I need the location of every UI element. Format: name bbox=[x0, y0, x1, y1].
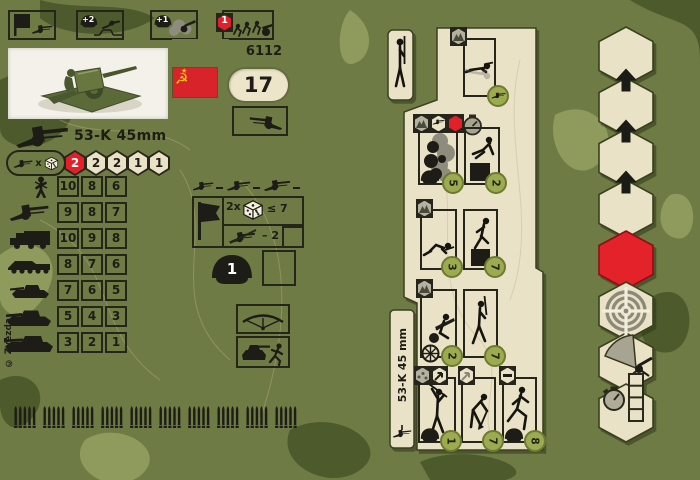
gun-badge bbox=[430, 114, 447, 133]
copyright: © Zvezda bbox=[4, 318, 14, 367]
rally-flag-cell bbox=[194, 198, 224, 246]
gun-icon bbox=[13, 159, 33, 168]
order-run-cost-badge: 8 bbox=[524, 430, 546, 452]
halt-badge bbox=[499, 366, 516, 385]
unit-stat-card: +2 +1 1 6112 bbox=[0, 0, 315, 440]
target-light-tank-icon bbox=[8, 282, 52, 299]
rally-threshold: ≤ 7 bbox=[267, 202, 288, 215]
copyright-wrap: © Zvezda bbox=[4, 300, 14, 386]
rally-flag-icon bbox=[194, 198, 222, 244]
rally-box: 2x ≤ 7 – 2 bbox=[192, 196, 304, 248]
trench-shooter-icon bbox=[94, 14, 122, 38]
order-cost: 7 bbox=[489, 263, 501, 270]
gun-in-bush-icon bbox=[168, 13, 196, 37]
soviet-flag: ★ ☭ bbox=[173, 68, 217, 97]
crew-pushing-gun-icon bbox=[230, 14, 272, 38]
to-hit-cell: 6 bbox=[105, 254, 127, 275]
crew-counter: 1 bbox=[208, 252, 256, 290]
vertical-title-wrap: 53-K 45 mm bbox=[390, 312, 414, 418]
to-hit-cell: 8 bbox=[81, 176, 103, 197]
unit-photo bbox=[8, 48, 168, 119]
rough-ground-badge bbox=[414, 366, 431, 385]
target-halftrack-icon bbox=[6, 256, 52, 274]
to-hit-cell: 4 bbox=[81, 306, 103, 327]
assault-box bbox=[236, 336, 290, 368]
flag-and-gun-icon bbox=[10, 12, 54, 38]
to-hit-cell: 10 bbox=[57, 228, 79, 249]
helmet-icon bbox=[419, 169, 441, 187]
unit-title: 53-K 45mm bbox=[74, 128, 214, 144]
order-assault-cost-badge: 2 bbox=[485, 172, 507, 194]
concealment-bonus-box: +1 bbox=[150, 10, 198, 40]
to-hit-cell: 1 bbox=[105, 332, 127, 353]
anti-tank-gun-icon bbox=[246, 115, 286, 130]
order-cost: 1 bbox=[445, 437, 457, 444]
range-bands-icon bbox=[192, 178, 304, 194]
terrain-badge bbox=[413, 114, 430, 133]
to-hit-cell: 3 bbox=[105, 306, 127, 327]
to-hit-cell: 7 bbox=[81, 254, 103, 275]
to-hit-cell: 7 bbox=[105, 202, 127, 223]
target-gun-icon bbox=[8, 203, 50, 221]
to-hit-cell: 10 bbox=[57, 176, 79, 197]
attack-formula-box: x bbox=[6, 150, 66, 176]
infantry-bonus-label: +2 bbox=[82, 15, 94, 24]
pebbles-icon bbox=[416, 370, 429, 381]
to-hit-cell: 3 bbox=[57, 332, 79, 353]
deployment-icon-box bbox=[8, 10, 56, 40]
terrain-badge bbox=[416, 199, 433, 218]
wheel-icon bbox=[420, 343, 441, 364]
order-cost: 8 bbox=[529, 437, 541, 444]
marker-square bbox=[262, 250, 296, 286]
vertical-title: 53-K 45 mm bbox=[396, 328, 409, 402]
ammo-clips-strip bbox=[12, 404, 304, 430]
target-truck-icon bbox=[8, 229, 52, 250]
soldier-with-rifle-icon bbox=[390, 34, 411, 96]
rally-multiplier: 2x bbox=[226, 200, 241, 213]
order-smoke-cost-badge: 5 bbox=[442, 172, 464, 194]
dice-icon bbox=[44, 156, 59, 171]
terrain-badge bbox=[450, 27, 467, 46]
rally-empty-cell bbox=[282, 226, 302, 246]
mountain-icon bbox=[418, 202, 431, 215]
title-gun-icon bbox=[14, 124, 70, 148]
order-climb-cost-badge: 7 bbox=[484, 256, 506, 278]
order-cost: 5 bbox=[447, 179, 459, 186]
to-hit-cell: 6 bbox=[105, 176, 127, 197]
terrain-badge bbox=[416, 279, 433, 298]
order-crew-gun-cost-badge: 2 bbox=[441, 345, 463, 367]
order-crawl-cost-badge: 3 bbox=[441, 256, 463, 278]
helmet-icon bbox=[503, 427, 525, 445]
order-ambush-cost-badge bbox=[487, 85, 509, 107]
arrow-icon bbox=[434, 370, 445, 381]
title-tab-gun-icon bbox=[392, 424, 412, 444]
order-cost: 2 bbox=[490, 179, 502, 186]
to-hit-cell: 2 bbox=[81, 332, 103, 353]
rally-modifier: – 2 bbox=[262, 229, 279, 242]
dice-icon bbox=[242, 199, 264, 221]
mountain-icon bbox=[452, 30, 465, 43]
game-card-scan: +2 +1 1 6112 bbox=[0, 0, 700, 480]
order-cost: 2 bbox=[446, 352, 458, 359]
to-hit-cell: 7 bbox=[57, 280, 79, 301]
mountain-icon bbox=[415, 117, 428, 130]
concealment-bonus-label: +1 bbox=[156, 15, 168, 24]
times-label: x bbox=[35, 158, 41, 169]
to-hit-cell: 8 bbox=[105, 228, 127, 249]
crew-count: 1 bbox=[208, 260, 256, 278]
infantry-bonus-box: +2 bbox=[76, 10, 124, 40]
hammer-sickle-icon: ☭ bbox=[175, 70, 188, 88]
target-infantry-icon bbox=[32, 176, 50, 198]
gun-icon bbox=[432, 119, 445, 126]
unit-class-box bbox=[232, 106, 288, 136]
helmet-icon bbox=[419, 427, 441, 445]
points-value: 17 bbox=[229, 69, 288, 101]
order-cost: 7 bbox=[487, 437, 499, 444]
to-hit-cell: 5 bbox=[105, 280, 127, 301]
tank-assault-icon bbox=[238, 338, 288, 366]
order-cost: 7 bbox=[489, 352, 501, 359]
glider-transport-box bbox=[236, 304, 290, 334]
dash-icon bbox=[503, 374, 512, 377]
mountain-icon bbox=[418, 282, 431, 295]
gun-icon bbox=[491, 92, 506, 100]
to-hit-cell: 8 bbox=[81, 202, 103, 223]
order-stand-fire-cost-badge: 1 bbox=[440, 430, 462, 452]
move-arrow-badge-gray bbox=[458, 366, 475, 385]
red-badge bbox=[447, 114, 464, 133]
gun-model-photo bbox=[8, 48, 168, 119]
order-cost: 3 bbox=[446, 263, 458, 270]
lost-gun-icon bbox=[228, 228, 258, 244]
move-arrow-badge bbox=[431, 366, 448, 385]
to-hit-cell: 6 bbox=[81, 280, 103, 301]
to-hit-cell: 5 bbox=[57, 306, 79, 327]
arrow-icon bbox=[461, 370, 472, 381]
glider-icon bbox=[238, 306, 288, 332]
to-hit-cell: 8 bbox=[57, 254, 79, 275]
order-march-cost-badge: 7 bbox=[484, 345, 506, 367]
product-code: 6112 bbox=[236, 44, 292, 59]
to-hit-cell: 9 bbox=[81, 228, 103, 249]
order-entrench-cost-badge: 7 bbox=[482, 430, 504, 452]
prone-soldier-icon bbox=[465, 40, 494, 95]
to-hit-cell: 9 bbox=[57, 202, 79, 223]
